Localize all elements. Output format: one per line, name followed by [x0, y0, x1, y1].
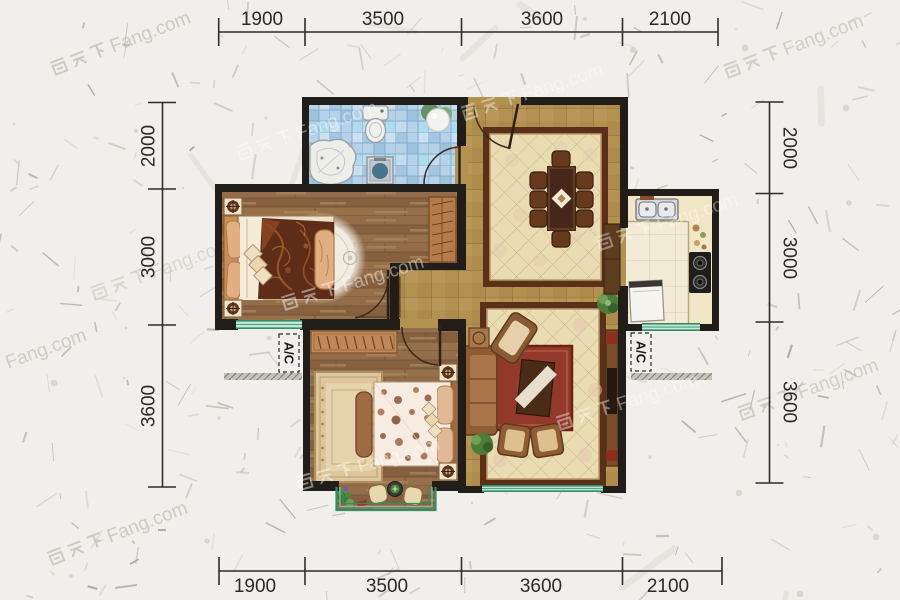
svg-text:3500: 3500: [366, 576, 408, 597]
svg-text:2000: 2000: [139, 125, 160, 167]
svg-text:2000: 2000: [779, 127, 800, 169]
svg-text:3600: 3600: [139, 385, 160, 427]
svg-text:3600: 3600: [520, 576, 562, 597]
svg-text:A/C: A/C: [634, 341, 649, 364]
svg-text:A/C: A/C: [282, 342, 297, 365]
svg-text:3600: 3600: [779, 381, 800, 423]
svg-text:1900: 1900: [241, 9, 283, 30]
svg-text:3600: 3600: [521, 9, 563, 30]
svg-text:3000: 3000: [139, 236, 160, 278]
svg-text:1900: 1900: [234, 576, 276, 597]
svg-text:2100: 2100: [649, 9, 691, 30]
svg-text:3500: 3500: [362, 9, 404, 30]
svg-text:3000: 3000: [779, 237, 800, 279]
svg-text:2100: 2100: [647, 576, 689, 597]
